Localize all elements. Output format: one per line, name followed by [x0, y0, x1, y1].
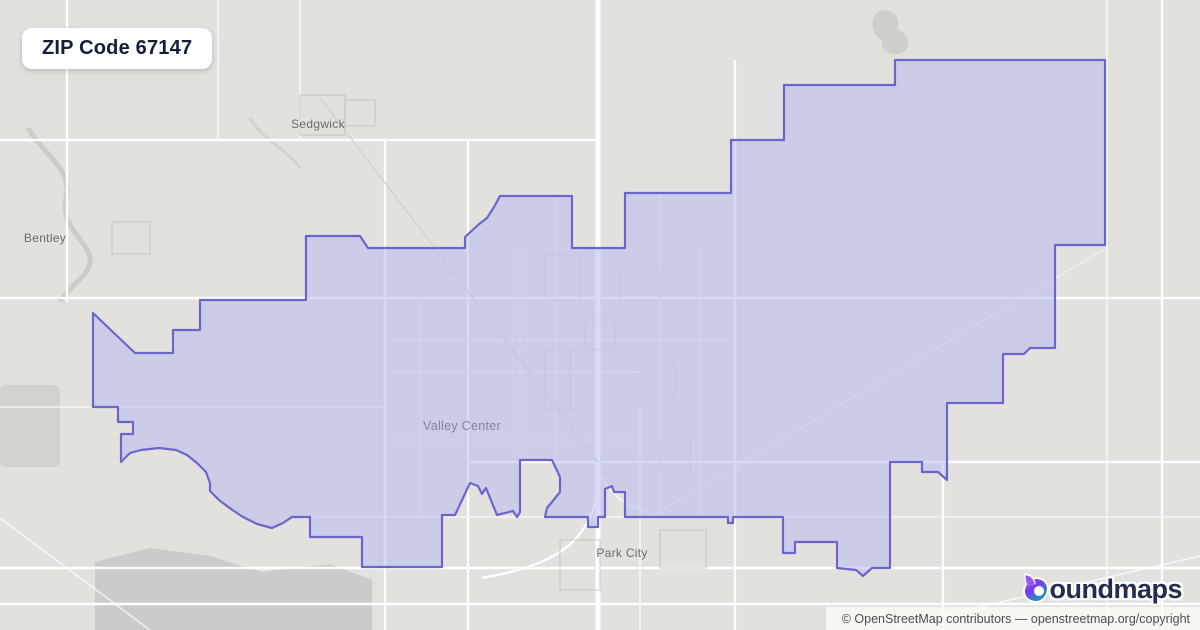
map-canvas[interactable]: [0, 0, 1200, 630]
boundmaps-logo[interactable]: oundmaps: [1025, 574, 1182, 605]
map-screenshot: Sedgwick Bentley Valley Center Park City…: [0, 0, 1200, 630]
place-label-sedgwick: Sedgwick: [291, 117, 345, 131]
place-label-bentley: Bentley: [24, 231, 66, 245]
osm-copyright-link[interactable]: © OpenStreetMap contributors — openstree…: [842, 612, 1190, 626]
boundmaps-logo-text: oundmaps: [1049, 574, 1182, 605]
attribution-bar: © OpenStreetMap contributors — openstree…: [826, 607, 1200, 630]
place-label-park-city: Park City: [596, 546, 647, 560]
zip-code-title-badge: ZIP Code 67147: [22, 28, 212, 69]
boundmaps-b-icon: [1025, 579, 1047, 601]
place-label-valley-center: Valley Center: [423, 419, 501, 433]
